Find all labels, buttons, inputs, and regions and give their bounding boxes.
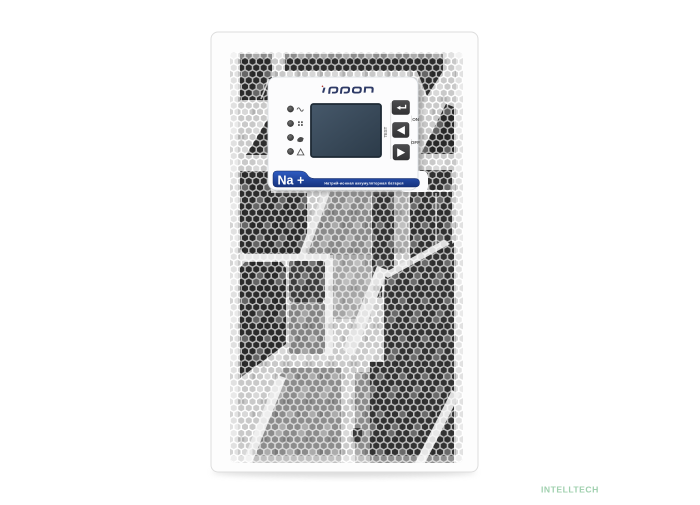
svg-text:Натрий-ионная аккумуляторная б: Натрий-ионная аккумуляторная батарея: [324, 181, 403, 185]
svg-text:INTELLTECH: INTELLTECH: [541, 485, 599, 495]
svg-text:ON: ON: [412, 117, 420, 122]
svg-text:TEST: TEST: [383, 126, 388, 137]
svg-text:OFF: OFF: [411, 140, 420, 145]
svg-text:Na +: Na +: [278, 173, 305, 187]
